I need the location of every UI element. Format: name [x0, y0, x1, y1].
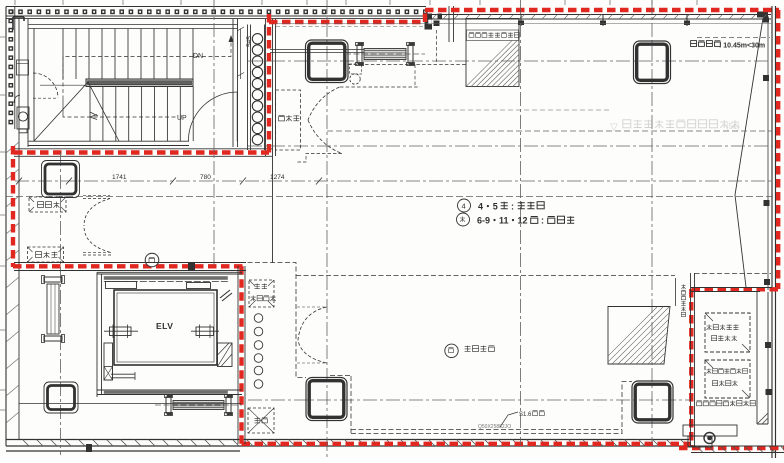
svg-text:1741: 1741 [112, 174, 127, 181]
svg-text:S1.6: S1.6 [519, 412, 532, 418]
svg-text:4: 4 [462, 202, 466, 211]
svg-text::: : [511, 202, 514, 212]
svg-text:6-9・11・12: 6-9・11・12 [477, 216, 528, 226]
svg-text:ELV: ELV [156, 321, 173, 331]
svg-text:4・5: 4・5 [478, 202, 498, 212]
svg-text:Q50X25882JO: Q50X25882JO [478, 424, 511, 430]
svg-text:: 10.45m<30m: : 10.45m<30m [719, 43, 765, 50]
svg-text:1274: 1274 [270, 174, 285, 181]
svg-text:UP: UP [177, 115, 187, 122]
svg-text:(5c): (5c) [726, 122, 740, 131]
svg-text::: : [541, 216, 544, 226]
svg-text:780: 780 [200, 174, 211, 181]
svg-text:▽: ▽ [610, 122, 618, 133]
svg-text:DN: DN [193, 53, 203, 60]
